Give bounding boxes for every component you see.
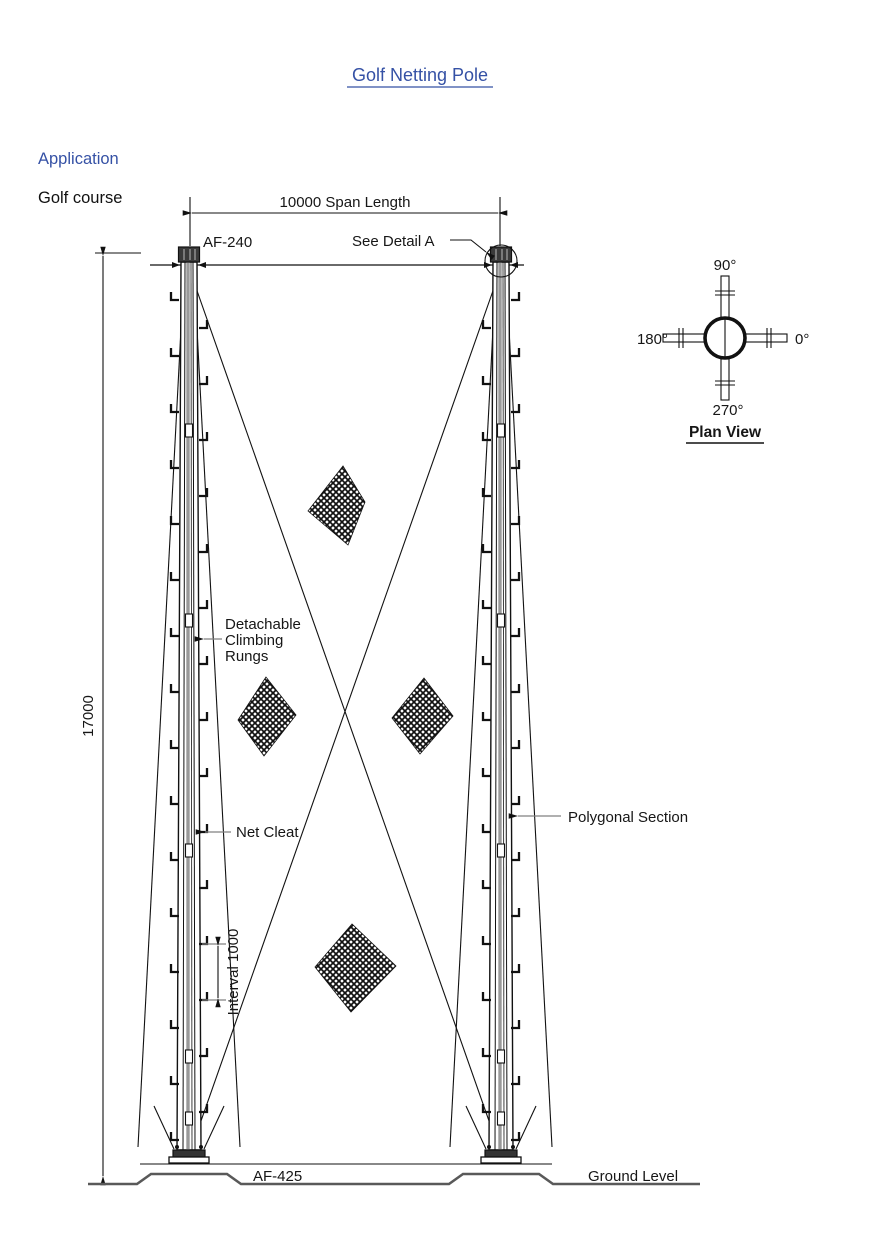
cross-cables	[189, 268, 501, 1155]
net-mesh-patch	[315, 924, 396, 1012]
top-fitting-label: AF-240	[203, 234, 252, 251]
pole-joint-mark	[498, 844, 505, 857]
pole-cap	[491, 247, 512, 262]
plan-arm-right	[743, 334, 787, 342]
net-mesh-patch	[238, 677, 296, 756]
ground-level-label: Ground Level	[588, 1168, 678, 1185]
pole-left	[138, 247, 240, 1163]
height-dimension: 17000	[80, 253, 141, 1176]
net-mesh-patch	[308, 466, 365, 545]
rungs-label-line2: Climbing	[225, 632, 283, 649]
net-mesh-patches	[238, 466, 453, 1012]
span-dimension-label: 10000 Span Length	[280, 194, 411, 211]
pole-joint-mark	[186, 424, 193, 437]
pole-joint-mark	[186, 844, 193, 857]
base-plate	[485, 1150, 517, 1157]
rungs-label-line3: Rungs	[225, 648, 268, 665]
pole-joint-mark	[186, 614, 193, 627]
application-heading: Application	[38, 150, 119, 168]
pole-joint-mark	[498, 1050, 505, 1063]
climbing-rungs-callout: Detachable Climbing Rungs	[204, 616, 301, 665]
rungs-label-line1: Detachable	[225, 616, 301, 633]
page-title: Golf Netting Pole	[352, 65, 488, 85]
drawing-sheet: Golf Netting Pole Application Golf cours…	[0, 0, 874, 1240]
pole-joint-mark	[186, 1050, 193, 1063]
plan-arm-top	[721, 276, 729, 320]
golf-netting-pole-drawing: Golf Netting Pole Application Golf cours…	[0, 0, 874, 1240]
pole-joint-mark	[498, 424, 505, 437]
cable-clamp-icon	[198, 262, 206, 268]
detail-label: See Detail A	[352, 233, 435, 250]
plan-angle-270: 270°	[712, 402, 743, 419]
pole-joint-mark	[186, 1112, 193, 1125]
polygonal-section-label: Polygonal Section	[568, 809, 688, 826]
detail-callout: See Detail A	[352, 233, 486, 252]
top-fitting-callout: AF-240	[203, 234, 252, 251]
polygonal-section-callout: Polygonal Section	[518, 809, 688, 826]
pole-joint-mark	[498, 1112, 505, 1125]
base-fitting-label: AF-425	[253, 1168, 302, 1185]
pole-joint-mark	[498, 614, 505, 627]
base-pedestal	[169, 1157, 209, 1163]
net-mesh-patch	[392, 678, 453, 754]
plan-angle-0: 0°	[795, 331, 809, 348]
pole-cap	[179, 247, 200, 262]
plan-angle-90: 90°	[714, 257, 737, 274]
plan-arm-bottom	[721, 356, 729, 400]
net-cleat-callout: Net Cleat	[205, 824, 299, 841]
plan-angle-180: 180°	[637, 331, 668, 348]
base-plate	[173, 1150, 205, 1157]
height-dimension-label: 17000	[80, 695, 97, 737]
plan-view-caption: Plan View	[689, 424, 762, 441]
plan-view: 90° 0° 180° 270° Plan View	[637, 257, 809, 443]
plan-arm-left	[663, 334, 707, 342]
interval-dimension-label: Interval 1000	[225, 929, 242, 1016]
net-cleat-label: Net Cleat	[236, 824, 299, 841]
cable-clamp-icon	[172, 262, 180, 268]
base-pedestal	[481, 1157, 521, 1163]
pole-right	[450, 247, 552, 1163]
application-value: Golf course	[38, 189, 122, 207]
